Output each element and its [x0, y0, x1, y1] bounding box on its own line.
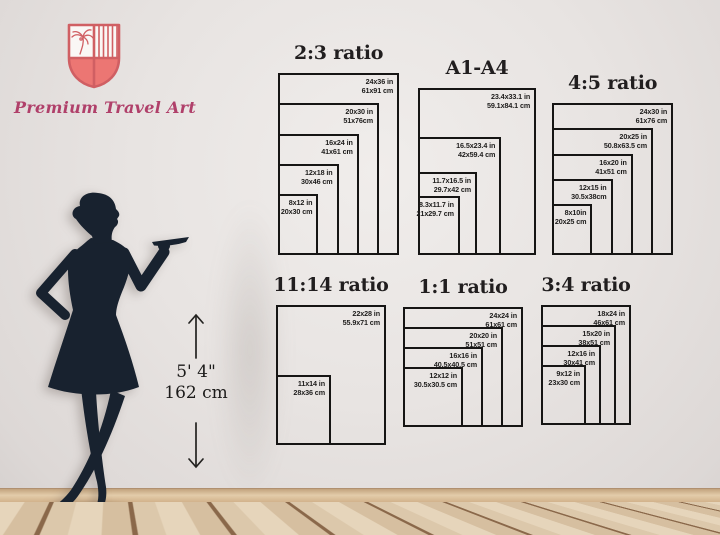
size-inches: 16x24 in — [321, 138, 353, 147]
size-label: 22x28 in55.9x71 cm — [343, 309, 380, 327]
brand-logo: Premium Travel Art — [14, 22, 174, 117]
size-cm: 61x76 cm — [636, 116, 668, 125]
size-label: 20x25 in50.8x63.5 cm — [604, 132, 647, 150]
size-cm: 41x51 cm — [595, 167, 627, 176]
chart-ratio-4-5: 4:5 ratio24x30 in61x76 cm20x25 in50.8x63… — [552, 103, 673, 255]
chart-title: 3:4 ratio — [541, 274, 630, 296]
size-cm: 55.9x71 cm — [343, 318, 380, 327]
size-cm: 42x59.4 cm — [456, 150, 495, 159]
size-box: 12x12 in30.5x30.5 cm — [403, 367, 463, 427]
size-cm: 61x91 cm — [362, 86, 394, 95]
size-cm: 41x61 cm — [321, 147, 353, 156]
size-label: 12x18 in30x46 cm — [301, 168, 333, 186]
height-metric: 162 cm — [150, 382, 242, 404]
chart-title: 2:3 ratio — [294, 42, 383, 64]
size-cm: 23x30 cm — [548, 378, 580, 387]
size-label: 8.3x11.7 in21x29.7 cm — [417, 200, 454, 218]
size-cm: 30.5x30.5 cm — [414, 380, 457, 389]
size-inches: 9x12 in — [548, 369, 580, 378]
size-label: 9x12 in23x30 cm — [548, 369, 580, 387]
size-label: 16.5x23.4 in42x59.4 cm — [456, 141, 495, 159]
chart-title: 4:5 ratio — [568, 72, 657, 94]
chart-title: 1:1 ratio — [418, 276, 507, 298]
size-box: 8.3x11.7 in21x29.7 cm — [418, 196, 460, 255]
size-inches: 11.7x16.5 in — [432, 176, 471, 185]
wall-shadow — [215, 200, 285, 500]
chart-ratio-2-3: 2:3 ratio24x36 in61x91 cm20x30 in51x76cm… — [278, 73, 399, 255]
size-box: 11x14 in28x36 cm — [276, 375, 331, 445]
woman-silhouette — [25, 190, 195, 520]
chart-title: A1-A4 — [446, 57, 509, 79]
brand-name: Premium Travel Art — [14, 98, 174, 117]
height-imperial: 5' 4" — [150, 362, 242, 382]
size-label: 11.7x16.5 in29.7x42 cm — [432, 176, 471, 194]
size-inches: 24x24 in — [485, 311, 517, 320]
size-cm: 21x29.7 cm — [417, 209, 454, 218]
size-inches: 20x25 in — [604, 132, 647, 141]
size-label: 12x12 in30.5x30.5 cm — [414, 371, 457, 389]
size-label: 8x10in20x25 cm — [555, 208, 587, 226]
size-inches: 16x16 in — [434, 351, 477, 360]
size-cm: 20x25 cm — [555, 217, 587, 226]
size-inches: 8x12 in — [281, 198, 313, 207]
size-cm: 20x30 cm — [281, 207, 313, 216]
size-inches: 8.3x11.7 in — [417, 200, 454, 209]
size-inches: 18x24 in — [593, 309, 625, 318]
size-label: 20x30 in51x76cm — [343, 107, 373, 125]
size-inches: 24x36 in — [362, 77, 394, 86]
size-inches: 16.5x23.4 in — [456, 141, 495, 150]
chart-ratio-3-4: 3:4 ratio18x24 in46x61 cm15x20 in38x51 c… — [541, 305, 631, 425]
size-label: 11x14 in28x36 cm — [293, 379, 325, 397]
shield-icon — [66, 22, 122, 90]
size-cm: 50.8x63.5 cm — [604, 141, 647, 150]
size-inches: 12x12 in — [414, 371, 457, 380]
size-label: 24x36 in61x91 cm — [362, 77, 394, 95]
size-label: 23.4x33.1 in59.1x84.1 cm — [487, 92, 530, 110]
size-label: 24x30 in61x76 cm — [636, 107, 668, 125]
size-inches: 15x20 in — [578, 329, 610, 338]
size-cm: 28x36 cm — [293, 388, 325, 397]
size-inches: 24x30 in — [636, 107, 668, 116]
poster-scene: Premium Travel Art 5' 4" — [0, 0, 720, 535]
size-cm: 51x76cm — [343, 116, 373, 125]
size-box: 8x10in20x25 cm — [552, 204, 592, 255]
chart-title: 11:14 ratio — [273, 274, 388, 296]
size-inches: 20x20 in — [465, 331, 497, 340]
size-label: 12x15 in30.5x38cm — [571, 183, 606, 201]
chart-ratio-11-14: 11:14 ratio22x28 in55.9x71 cm11x14 in28x… — [276, 305, 386, 445]
size-label: 8x12 in20x30 cm — [281, 198, 313, 216]
size-inches: 12x15 in — [571, 183, 606, 192]
size-inches: 23.4x33.1 in — [487, 92, 530, 101]
size-inches: 16x20 in — [595, 158, 627, 167]
size-label: 16x24 in41x61 cm — [321, 138, 353, 156]
size-box: 8x12 in20x30 cm — [278, 194, 318, 255]
size-inches: 22x28 in — [343, 309, 380, 318]
size-inches: 12x16 in — [563, 349, 595, 358]
chart-a1-a4: A1-A423.4x33.1 in59.1x84.1 cm16.5x23.4 i… — [418, 88, 536, 255]
size-inches: 20x30 in — [343, 107, 373, 116]
size-inches: 8x10in — [555, 208, 587, 217]
size-inches: 12x18 in — [301, 168, 333, 177]
size-cm: 29.7x42 cm — [432, 185, 471, 194]
size-label: 16x20 in41x51 cm — [595, 158, 627, 176]
size-cm: 30.5x38cm — [571, 192, 606, 201]
size-box: 9x12 in23x30 cm — [541, 365, 586, 425]
size-cm: 59.1x84.1 cm — [487, 101, 530, 110]
chart-ratio-1-1: 1:1 ratio24x24 in61x61 cm20x20 in51x51 c… — [403, 307, 523, 427]
size-cm: 30x46 cm — [301, 177, 333, 186]
height-label: 5' 4" 162 cm — [150, 362, 242, 404]
size-inches: 11x14 in — [293, 379, 325, 388]
